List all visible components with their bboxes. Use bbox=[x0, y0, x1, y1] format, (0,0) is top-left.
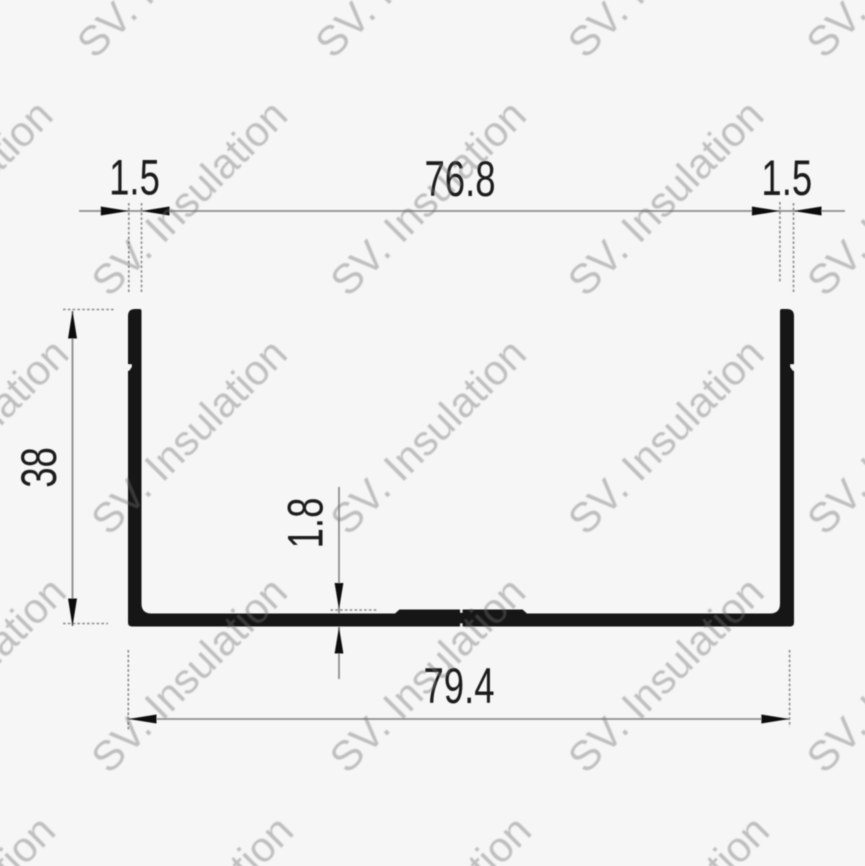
svg-text:1.5: 1.5 bbox=[761, 150, 812, 206]
svg-text:38: 38 bbox=[11, 447, 67, 488]
svg-text:1.5: 1.5 bbox=[109, 150, 160, 206]
